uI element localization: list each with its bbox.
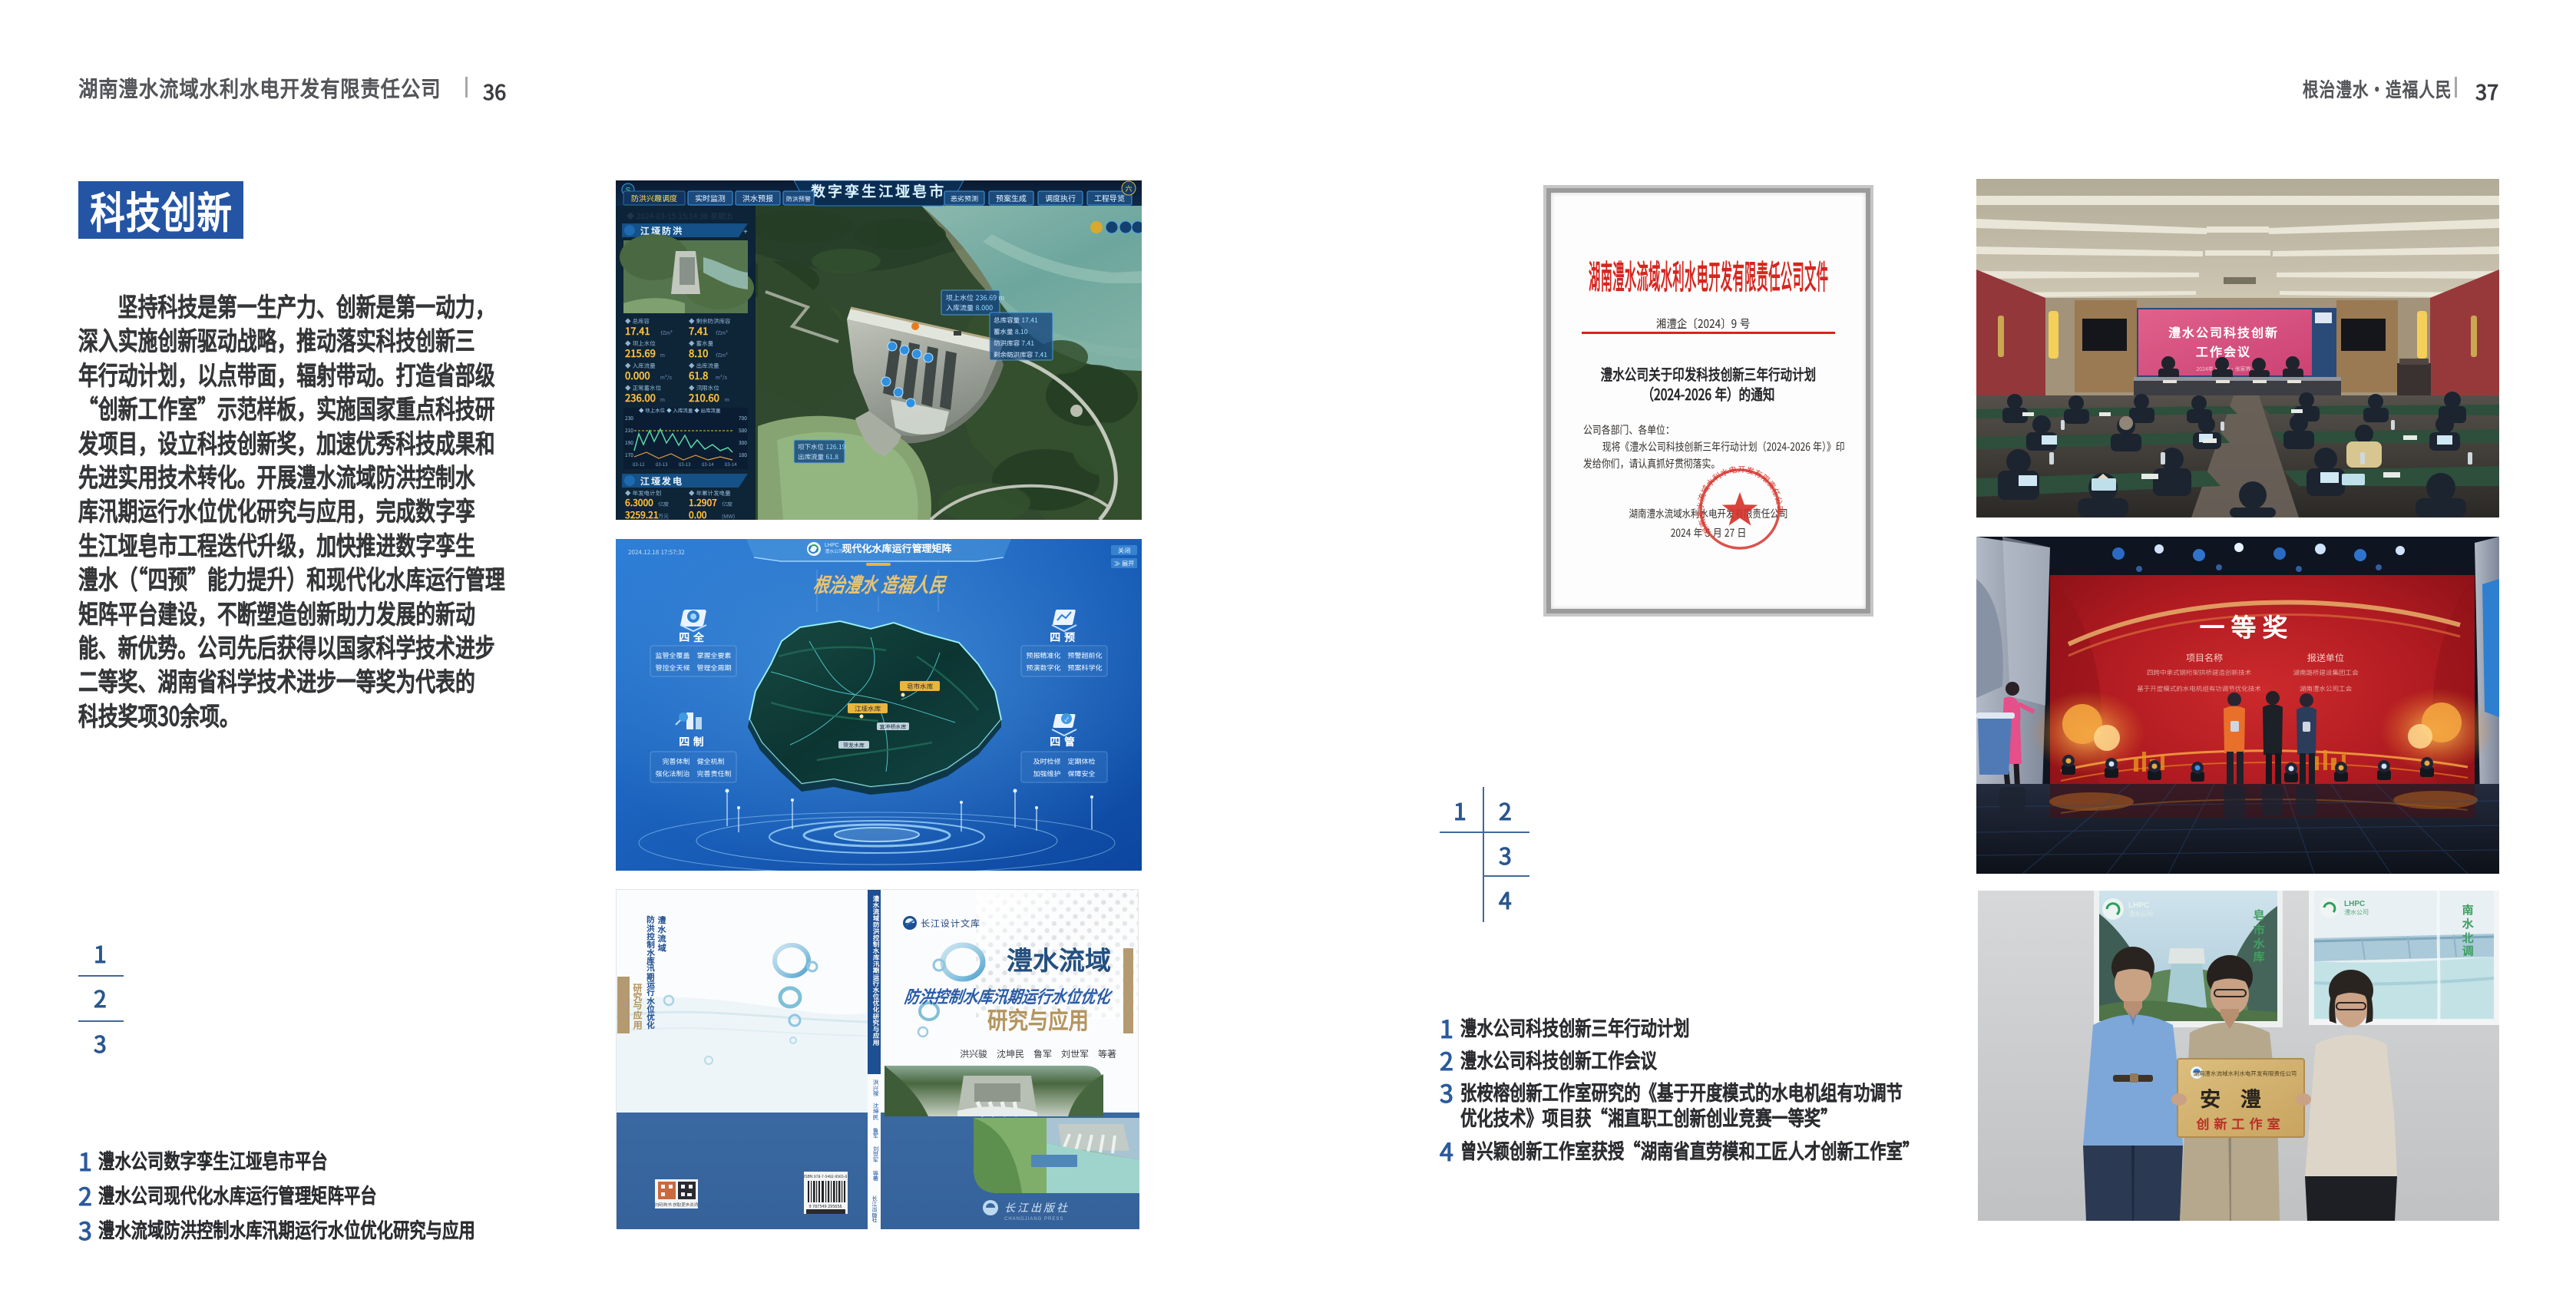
svg-text:亿m³: 亿m³ <box>716 329 728 337</box>
svg-text:工程导览: 工程导览 <box>1094 192 1125 203</box>
svg-text:一等奖: 一等奖 <box>2200 607 2294 644</box>
svg-text:2024.12.18 17:57:32: 2024.12.18 17:57:32 <box>628 548 685 557</box>
svg-text:澧水公司: 澧水公司 <box>2344 908 2369 917</box>
svg-text:预报精准化 预警超前化: 预报精准化 预警超前化 <box>1026 650 1102 660</box>
svg-text:03-12: 03-12 <box>633 461 645 468</box>
svg-text:南水北调: 南水北调 <box>2460 903 2476 958</box>
svg-text:扫码购书 获取更多资讯: 扫码购书 获取更多资讯 <box>655 1202 699 1208</box>
svg-text:236.00: 236.00 <box>625 390 656 405</box>
svg-text:215.69: 215.69 <box>625 346 656 360</box>
svg-text:报送单位: 报送单位 <box>2307 651 2344 664</box>
svg-text:基于开度模式的水电机组有功调节优化技术: 基于开度模式的水电机组有功调节优化技术 <box>2137 684 2261 693</box>
svg-text:湖南澧水公司工会: 湖南澧水公司工会 <box>2300 684 2353 693</box>
svg-text:17.41: 17.41 <box>625 323 650 338</box>
svg-text:调度执行: 调度执行 <box>1045 192 1076 203</box>
svg-text:长江设计文库: 长江设计文库 <box>921 917 980 930</box>
svg-text:入库流量 8.000: 入库流量 8.000 <box>946 303 993 312</box>
svg-text:四制: 四制 <box>679 734 708 749</box>
svg-text:总库容量 17.41: 总库容量 17.41 <box>994 316 1038 325</box>
svg-text:0.000: 0.000 <box>625 368 650 382</box>
svg-text:完善体制 健全机制: 完善体制 健全机制 <box>662 756 724 766</box>
svg-text:500: 500 <box>739 426 747 434</box>
svg-text:创新工作室: 创新工作室 <box>2196 1113 2285 1132</box>
svg-text:防洪库容 7.41: 防洪库容 7.41 <box>994 339 1034 348</box>
svg-text:1.2907: 1.2907 <box>689 496 717 509</box>
svg-text:及时检修 定期体检: 及时检修 定期体检 <box>1033 756 1095 766</box>
svg-text:3259.21: 3259.21 <box>625 508 659 520</box>
svg-text:100: 100 <box>739 451 747 458</box>
svg-text:预案生成: 预案生成 <box>996 192 1027 203</box>
svg-text:210.60: 210.60 <box>689 390 719 405</box>
svg-text:实时监测: 实时监测 <box>695 192 726 203</box>
svg-text:m³/s: m³/s <box>716 374 727 382</box>
svg-text:贺龙水库: 贺龙水库 <box>843 742 865 749</box>
svg-text:03-13: 03-13 <box>656 461 668 468</box>
svg-text:湖南澧水流域水利水电开发有限责任公司: 湖南澧水流域水利水电开发有限责任公司 <box>2194 1070 2297 1078</box>
svg-text:剩余防洪库容 7.41: 剩余防洪库容 7.41 <box>994 350 1047 359</box>
svg-text:万元: 万元 <box>658 513 669 520</box>
svg-text:700: 700 <box>739 414 747 422</box>
svg-text:防洪兴趣调度: 防洪兴趣调度 <box>631 192 677 203</box>
svg-text:加强维护 保障安全: 加强维护 保障安全 <box>1033 769 1095 779</box>
svg-text:亿度: 亿度 <box>722 501 732 508</box>
svg-text:✓: ✓ <box>1064 716 1069 724</box>
svg-text:澧水公司科技创新: 澧水公司科技创新 <box>2168 322 2279 341</box>
svg-text:根治澧水 造福人民: 根治澧水 造福人民 <box>812 569 949 598</box>
svg-text:LHPC: LHPC <box>2344 897 2365 908</box>
svg-text:恶劣预测: 恶劣预测 <box>951 193 978 203</box>
svg-text:江垭发电: 江垭发电 <box>640 474 683 488</box>
svg-text:190: 190 <box>625 438 633 446</box>
svg-text:现代化水库运行管理矩阵: 现代化水库运行管理矩阵 <box>841 541 952 555</box>
svg-text:230: 230 <box>625 414 633 422</box>
svg-text:(MW): (MW) <box>722 513 735 520</box>
svg-text:四跨中承式钢桁架拱桥建造创新技术: 四跨中承式钢桁架拱桥建造创新技术 <box>2147 668 2252 677</box>
svg-text:◆ 坝上水位 ◆ 入库流量 ◆ 出库流量: ◆ 坝上水位 ◆ 入库流量 ◆ 出库流量 <box>639 406 721 414</box>
svg-text:坝下水位 126.19: 坝下水位 126.19 <box>798 442 846 451</box>
svg-text:江垭水库: 江垭水库 <box>855 704 881 713</box>
svg-text:ISBN 978-7-5492-9565-8: ISBN 978-7-5492-9565-8 <box>804 1174 848 1179</box>
svg-text:澧水公司: 澧水公司 <box>825 547 843 554</box>
svg-text:m: m <box>660 396 665 404</box>
svg-text:7.41: 7.41 <box>689 323 708 338</box>
svg-text:安澧: 安澧 <box>2200 1083 2281 1113</box>
svg-text:出库流量 61.8: 出库流量 61.8 <box>798 452 838 461</box>
svg-text:亿度: 亿度 <box>658 501 669 508</box>
svg-text:澧水公司: 澧水公司 <box>2128 910 2153 918</box>
svg-text:皂市水库: 皂市水库 <box>2251 909 2267 964</box>
svg-text:宜冲桥水库: 宜冲桥水库 <box>880 723 907 731</box>
svg-text:≫ 展开: ≫ 展开 <box>1114 560 1134 568</box>
svg-text:170: 170 <box>625 451 633 458</box>
svg-text:数字孪生江垭皂市: 数字孪生江垭皂市 <box>811 180 946 201</box>
svg-text:研究与应用: 研究与应用 <box>987 1001 1089 1036</box>
svg-text:六: 六 <box>1125 184 1133 193</box>
svg-text:关闭: 关闭 <box>1118 547 1130 555</box>
svg-text:9 787549 295658: 9 787549 295658 <box>809 1203 842 1209</box>
svg-text:210: 210 <box>625 426 633 434</box>
svg-text:03-14: 03-14 <box>702 461 714 468</box>
svg-text:洪兴骏 沈坤民 鲁军 刘世军 等著: 洪兴骏 沈坤民 鲁军 刘世军 等著 <box>960 1047 1116 1060</box>
svg-text:四管: 四管 <box>1050 734 1079 749</box>
svg-text:CHANGJIANG PRESS: CHANGJIANG PRESS <box>1004 1215 1063 1222</box>
svg-text:项目名称: 项目名称 <box>2186 651 2223 664</box>
svg-text:m: m <box>660 352 665 359</box>
svg-text:洪水预报: 洪水预报 <box>742 192 773 203</box>
svg-text:亿m³: 亿m³ <box>660 329 673 337</box>
svg-text:预演数字化 预案科学化: 预演数字化 预案科学化 <box>1026 663 1102 673</box>
svg-text:四全: 四全 <box>679 630 708 645</box>
svg-text:监管全覆盖 掌握全要素: 监管全覆盖 掌握全要素 <box>655 650 731 660</box>
svg-text:300: 300 <box>739 438 747 446</box>
svg-text:03-14: 03-14 <box>725 461 737 468</box>
svg-text:m: m <box>725 396 729 404</box>
svg-text:皂市水库: 皂市水库 <box>907 682 934 691</box>
svg-text:0.00: 0.00 <box>689 508 707 520</box>
svg-text:澧水流域: 澧水流域 <box>1007 940 1111 977</box>
svg-text:蓄水量 8.10: 蓄水量 8.10 <box>994 327 1028 336</box>
svg-text:湖南路桥建设集团工会: 湖南路桥建设集团工会 <box>2293 668 2359 677</box>
svg-text:61.8: 61.8 <box>689 368 708 382</box>
svg-text:管控全天候 管理全周期: 管控全天候 管理全周期 <box>655 663 731 673</box>
svg-text:长江出版社: 长江出版社 <box>1004 1200 1070 1215</box>
svg-text:坝上水位 236.69 m: 坝上水位 236.69 m <box>945 293 1004 303</box>
svg-text:强化法制治 完善责任制: 强化法制治 完善责任制 <box>655 769 731 779</box>
svg-text:03-13: 03-13 <box>679 461 691 468</box>
svg-text:8.10: 8.10 <box>689 346 708 360</box>
svg-text:m³/s: m³/s <box>660 374 672 382</box>
svg-text:LHPC: LHPC <box>2128 898 2149 910</box>
svg-text:6.3000: 6.3000 <box>625 496 653 509</box>
svg-text:四预: 四预 <box>1050 630 1079 645</box>
svg-text:亿m³: 亿m³ <box>716 352 728 359</box>
svg-text:+: + <box>743 225 748 236</box>
svg-text:防洪预警: 防洪预警 <box>786 195 812 203</box>
